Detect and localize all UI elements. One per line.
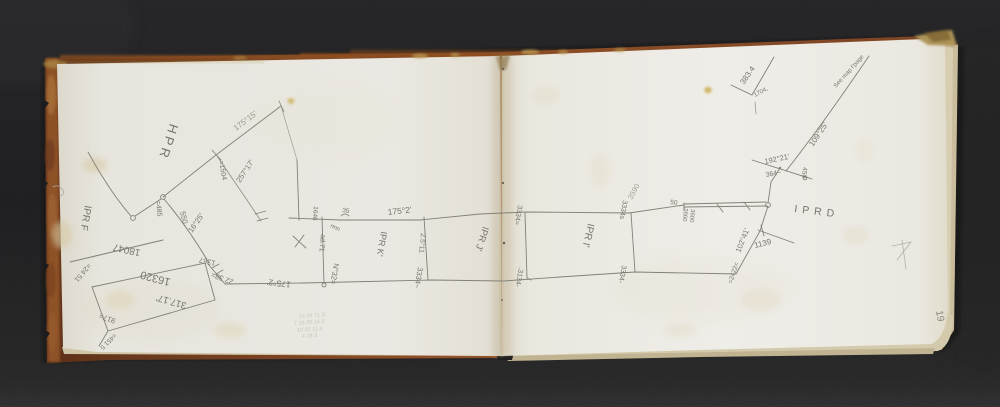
svg-text:4 18 3: 4 18 3	[302, 333, 318, 340]
svg-text:50: 50	[670, 199, 679, 207]
svg-text:3600: 3600	[688, 209, 695, 223]
svg-text:450: 450	[800, 167, 808, 179]
svg-text:2600: 2600	[681, 208, 688, 222]
svg-text:1646: 1646	[311, 206, 319, 221]
